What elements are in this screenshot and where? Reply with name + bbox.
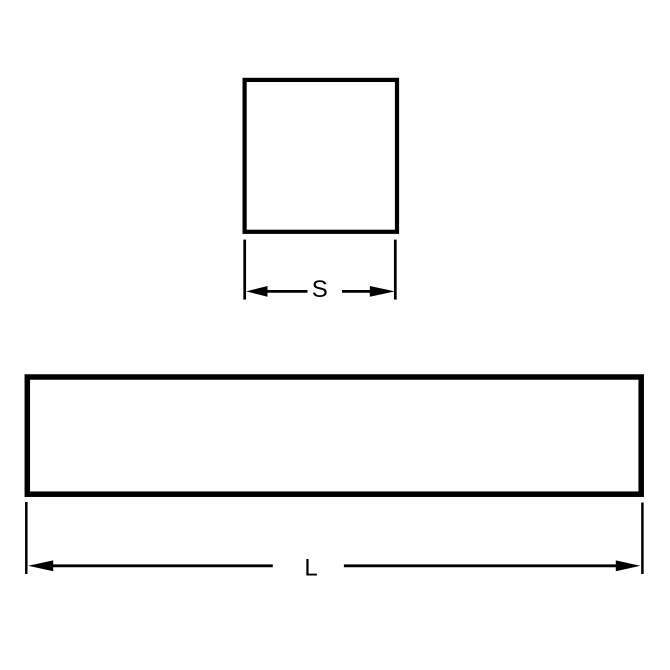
svg-text:L: L — [304, 554, 317, 581]
svg-text:S: S — [312, 276, 328, 303]
